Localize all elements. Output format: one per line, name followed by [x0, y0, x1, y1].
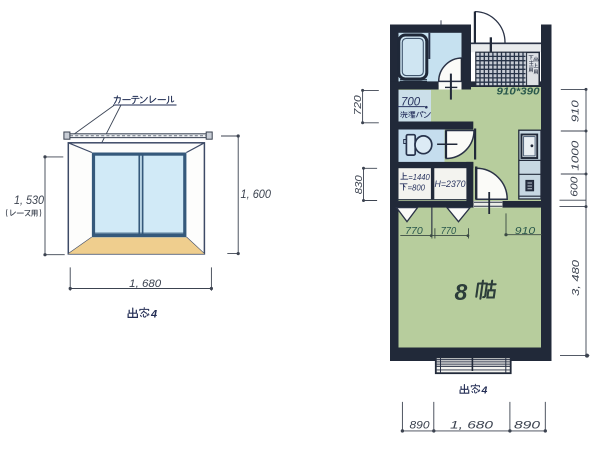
- svg-text:830: 830: [354, 175, 365, 194]
- svg-text:1, 530: 1, 530: [14, 195, 45, 207]
- svg-text:890: 890: [514, 420, 541, 432]
- svg-text:600: 600: [570, 176, 581, 197]
- svg-text:4: 4: [481, 385, 488, 397]
- svg-text:910: 910: [571, 100, 582, 123]
- svg-text:8: 8: [455, 279, 468, 305]
- svg-text:1, 680: 1, 680: [129, 278, 161, 290]
- svg-text:770: 770: [441, 225, 457, 237]
- svg-text:4: 4: [150, 309, 157, 321]
- svg-text:890: 890: [410, 420, 431, 432]
- svg-text:=800: =800: [408, 184, 426, 193]
- svg-text:H=2370: H=2370: [435, 179, 466, 189]
- svg-text:1000: 1000: [571, 140, 582, 171]
- svg-text:3, 480: 3, 480: [571, 259, 582, 296]
- svg-text:720: 720: [353, 95, 364, 116]
- svg-text:1, 600: 1, 600: [241, 189, 272, 201]
- svg-text:1, 680: 1, 680: [450, 420, 494, 432]
- svg-text:=1440: =1440: [408, 173, 430, 182]
- svg-text:770: 770: [405, 225, 423, 237]
- svg-text:910*390: 910*390: [497, 87, 541, 98]
